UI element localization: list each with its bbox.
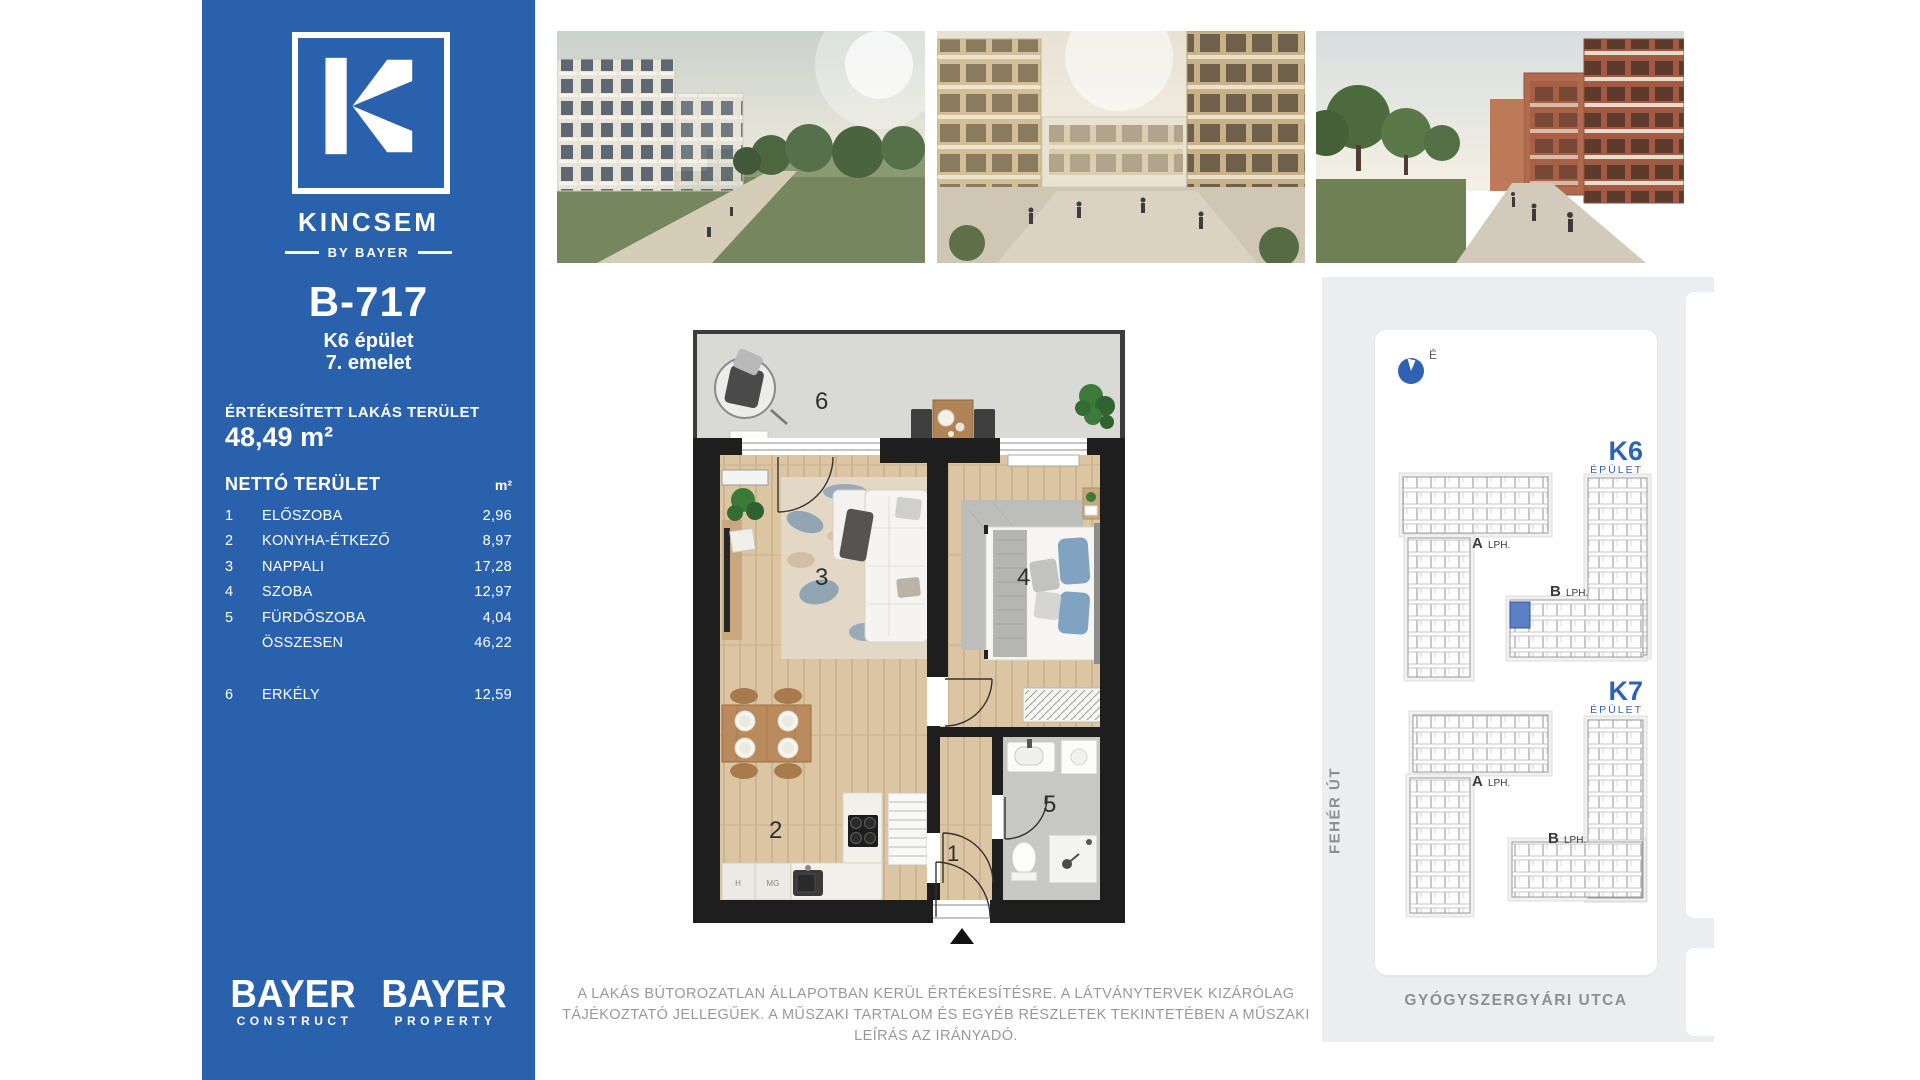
- table-row: 5 FÜRDŐSZOBA 4,04: [225, 605, 512, 631]
- k7-label: K7: [1608, 676, 1643, 706]
- appliance-h-label: H: [735, 879, 741, 888]
- k6-building: A LPH. B LPH. K6 ÉPÜLET: [1399, 436, 1651, 681]
- highlighted-unit-b717: [1510, 602, 1530, 628]
- sold-area-value: 48,49 m²: [225, 422, 333, 453]
- site-plan-panel: FEHÉR ÚT GYÓGYSZERGYÁRI UTCA É: [1322, 277, 1714, 1042]
- sold-area-label: ÉRTÉKESÍTETT LAKÁS TERÜLET: [225, 404, 480, 421]
- row-label: ERKÉLY: [262, 687, 474, 703]
- byline-text: BY BAYER: [328, 245, 410, 260]
- k6-label: K6: [1608, 436, 1643, 466]
- site-block-fragment: [1686, 292, 1714, 918]
- k7-staircase-a-label: A: [1472, 773, 1483, 790]
- row-num: 5: [225, 610, 262, 626]
- k6-epulet-label: ÉPÜLET: [1590, 463, 1643, 476]
- row-num: 2: [225, 533, 262, 549]
- row-label: ÖSSZESEN: [262, 635, 474, 651]
- row-num: 3: [225, 559, 262, 575]
- lph-label: LPH.: [1566, 588, 1588, 599]
- kincsem-logo-icon: [292, 32, 450, 194]
- brand-name: KINCSEM: [202, 207, 535, 238]
- bayer-property-logo: BAYER PROPERTY: [376, 977, 512, 1028]
- site-plan-card: É A: [1375, 330, 1657, 975]
- byline-dash-right: [418, 251, 452, 254]
- room-number-bath: 5: [1043, 791, 1056, 818]
- net-area-unit: m²: [495, 477, 512, 493]
- row-value: 17,28: [474, 559, 512, 575]
- floor-plan: H MG: [693, 330, 1125, 950]
- row-num: 1: [225, 508, 262, 524]
- k6-staircase-a-label: A: [1472, 535, 1483, 552]
- row-label: NAPPALI: [262, 559, 474, 575]
- compass-north-label: É: [1429, 347, 1437, 362]
- table-row: 2 KONYHA-ÉTKEZŐ 8,97: [225, 529, 512, 555]
- k7-staircase-b-label: B: [1548, 830, 1559, 847]
- brand-byline: BY BAYER: [202, 245, 535, 260]
- net-area-label: NETTÓ TERÜLET: [225, 474, 381, 495]
- table-row-total: ÖSSZESEN 46,22: [225, 631, 512, 657]
- row-value: 4,04: [483, 610, 512, 626]
- table-row: 3 NAPPALI 17,28: [225, 554, 512, 580]
- render-photo-street: [1316, 31, 1684, 263]
- sidebar: KINCSEM BY BAYER B-717 K6 épület 7. emel…: [202, 0, 535, 1080]
- appliance-mg-label: MG: [767, 879, 780, 888]
- lph-label: LPH.: [1564, 835, 1586, 846]
- logo-subtitle: PROPERTY: [379, 1014, 512, 1028]
- site-block-fragment: [1686, 948, 1714, 1036]
- lph-label: LPH.: [1488, 540, 1510, 551]
- room-number-living: 3: [815, 564, 828, 591]
- row-value: 12,97: [474, 584, 512, 600]
- street-label-feher-ut: FEHÉR ÚT: [1327, 756, 1344, 866]
- k7-building: A LPH. B LPH. K7 ÉPÜLET: [1406, 676, 1647, 917]
- row-value: 12,59: [474, 687, 512, 703]
- unit-id: B-717: [202, 278, 535, 326]
- row-label: ELŐSZOBA: [262, 508, 483, 524]
- k-monogram-icon: [312, 52, 418, 160]
- row-value: 46,22: [474, 635, 512, 651]
- logo-title: BAYER: [375, 976, 514, 1013]
- k6-staircase-b-label: B: [1550, 583, 1561, 600]
- building-floor: K6 épület 7. emelet: [202, 330, 535, 374]
- disclaimer-text: A LAKÁS BÚTOROZATLAN ÁLLAPOTBAN KERÜL ÉR…: [556, 984, 1316, 1047]
- row-label: SZOBA: [262, 584, 474, 600]
- logo-title: BAYER: [224, 976, 363, 1013]
- room-number-kitchen: 2: [769, 817, 782, 844]
- street-label-gyogyszergyari-utca: GYÓGYSZERGYÁRI UTCA: [1375, 992, 1657, 1010]
- datasheet-page: KINCSEM BY BAYER B-717 K6 épület 7. emel…: [0, 0, 1920, 1080]
- row-value: 2,96: [483, 508, 512, 524]
- building-name: K6 épület: [202, 330, 535, 352]
- row-num: 4: [225, 584, 262, 600]
- row-label: KONYHA-ÉTKEZŐ: [262, 533, 483, 549]
- row-value: 8,97: [483, 533, 512, 549]
- bayer-construct-logo: BAYER CONSTRUCT: [225, 977, 361, 1028]
- lph-label: LPH.: [1488, 778, 1510, 789]
- floor-label: 7. emelet: [202, 352, 535, 374]
- company-logos: BAYER CONSTRUCT BAYER PROPERTY: [225, 977, 512, 1028]
- net-area-header: NETTÓ TERÜLET m²: [225, 474, 512, 495]
- table-row: 4 SZOBA 12,97: [225, 580, 512, 606]
- render-photo-courtyard: [937, 31, 1305, 263]
- byline-dash-left: [285, 251, 319, 254]
- area-table: 1 ELŐSZOBA 2,96 2 KONYHA-ÉTKEZŐ 8,97 3 N…: [225, 503, 512, 708]
- render-photo-park: [557, 31, 925, 263]
- entrance-arrow-icon: [950, 928, 974, 944]
- room-number-hall: 1: [947, 841, 959, 866]
- table-row: 1 ELŐSZOBA 2,96: [225, 503, 512, 529]
- row-num: 6: [225, 687, 262, 703]
- room-number-balcony: 6: [815, 388, 828, 415]
- table-row: 6 ERKÉLY 12,59: [225, 682, 512, 708]
- room-number-bedroom: 4: [1017, 564, 1030, 591]
- logo-subtitle: CONSTRUCT: [228, 1014, 361, 1028]
- row-label: FÜRDŐSZOBA: [262, 610, 483, 626]
- k7-epulet-label: ÉPÜLET: [1590, 703, 1643, 716]
